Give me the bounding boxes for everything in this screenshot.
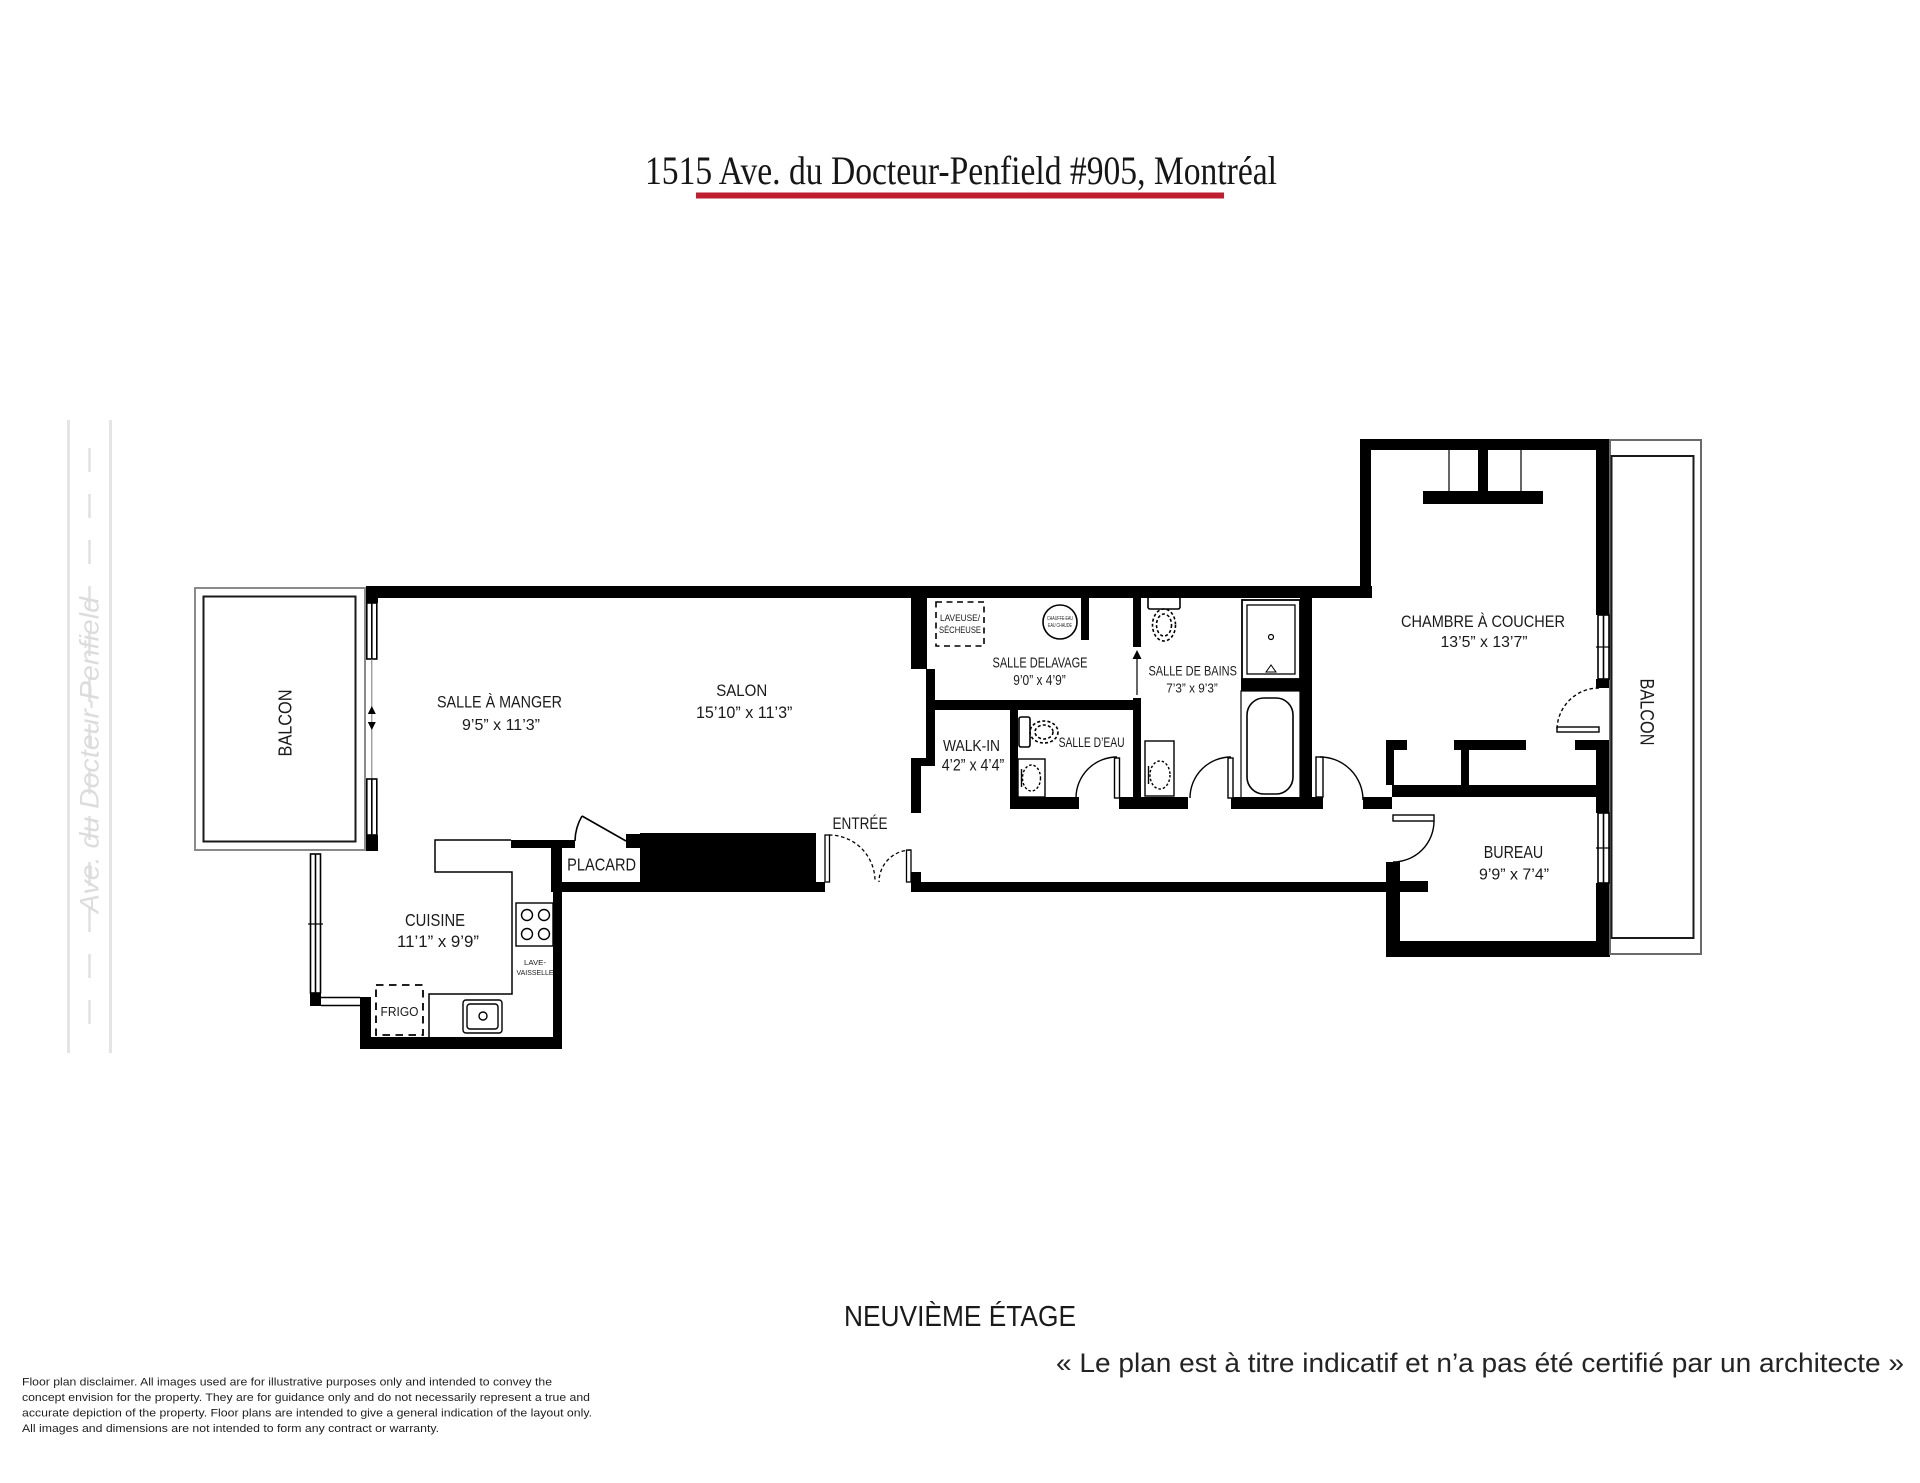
svg-text:SÉCHEUSE: SÉCHEUSE: [939, 625, 981, 636]
svg-text:LAVEUSE/: LAVEUSE/: [940, 613, 980, 624]
svg-text:VAISSELLE: VAISSELLE: [517, 968, 554, 977]
svg-text:SALLE DE BAINS: SALLE DE BAINS: [1148, 664, 1237, 679]
svg-text:PLACARD: PLACARD: [567, 855, 636, 875]
svg-text:SALLE DELAVAGE: SALLE DELAVAGE: [993, 655, 1088, 672]
svg-text:BUREAU: BUREAU: [1484, 842, 1544, 862]
svg-text:All images and dimensions are: All images and dimensions are not intend…: [22, 1423, 439, 1435]
svg-text:SALLE À MANGER: SALLE À MANGER: [437, 693, 562, 712]
svg-text:EAU CHAUDE: EAU CHAUDE: [1048, 623, 1072, 629]
svg-text:LAVE-: LAVE-: [524, 958, 547, 967]
svg-text:11’1” x 9’9”: 11’1” x 9’9”: [397, 933, 479, 951]
svg-text:BALCON: BALCON: [275, 690, 296, 757]
svg-text:FRIGO: FRIGO: [381, 1004, 419, 1019]
svg-text:7’3” x 9’3”: 7’3” x 9’3”: [1166, 681, 1218, 696]
svg-text:9’9” x 7’4”: 9’9” x 7’4”: [1479, 867, 1549, 884]
svg-text:WALK-IN: WALK-IN: [943, 738, 1000, 755]
svg-text:SALLE D’EAU: SALLE D’EAU: [1059, 734, 1125, 750]
svg-text:4’2” x 4’4”: 4’2” x 4’4”: [942, 757, 1005, 775]
svg-text:CUISINE: CUISINE: [405, 910, 465, 930]
svg-text:CHAMBRE À COUCHER: CHAMBRE À COUCHER: [1401, 612, 1565, 631]
svg-text:accurate depiction of the prop: accurate depiction of the property. Floo…: [22, 1408, 592, 1420]
svg-text:Ave. du Docteur-Penfield: Ave. du Docteur-Penfield: [75, 596, 105, 915]
svg-text:« Le plan est à titre indicati: « Le plan est à titre indicatif et n’a p…: [1056, 1348, 1904, 1378]
svg-text:9’5” x 11’3”: 9’5” x 11’3”: [462, 717, 540, 734]
svg-text:concept envision for the prope: concept envision for the property. They …: [22, 1392, 590, 1404]
svg-text:ENTRÉE: ENTRÉE: [833, 814, 888, 833]
svg-text:13’5” x 13’7”: 13’5” x 13’7”: [1441, 634, 1528, 651]
svg-text:NEUVIÈME ÉTAGE: NEUVIÈME ÉTAGE: [844, 1300, 1076, 1333]
svg-text:15’10” x 11’3”: 15’10” x 11’3”: [696, 703, 793, 722]
svg-text:1515 Ave. du Docteur-Penfield: 1515 Ave. du Docteur-Penfield #905, Mont…: [645, 148, 1277, 193]
svg-text:CHAUFFE-EAU: CHAUFFE-EAU: [1047, 616, 1073, 622]
svg-text:9’0” x 4’9”: 9’0” x 4’9”: [1013, 673, 1066, 689]
svg-text:BALCON: BALCON: [1636, 679, 1657, 746]
svg-text:Floor plan disclaimer. All ima: Floor plan disclaimer. All images used a…: [22, 1377, 552, 1389]
svg-text:SALON: SALON: [716, 682, 767, 700]
